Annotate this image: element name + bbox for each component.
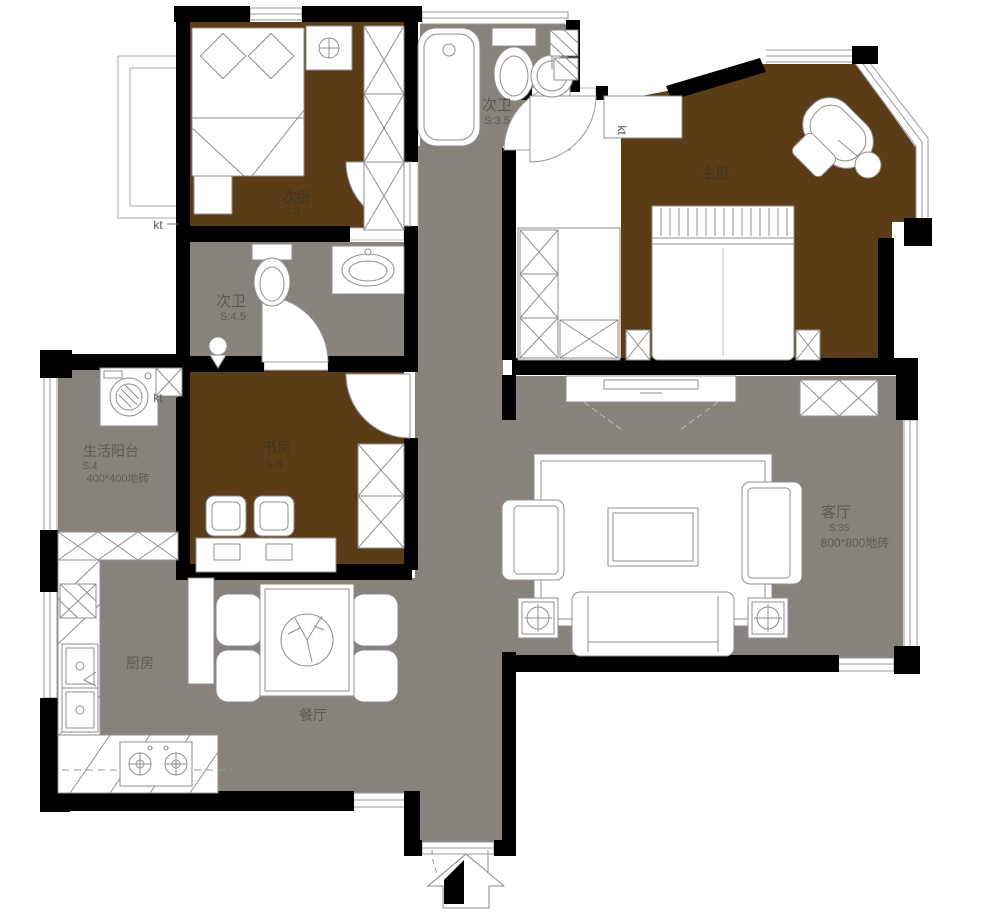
floor-plan-page: 次卧 S:8 次卫 S:3.5 主卧 次卫 S:4.5 书房 S:8 生活阳台 …: [0, 0, 1000, 913]
bathtub: [418, 28, 480, 146]
label-kitchen: 厨房: [126, 655, 154, 671]
toilet: [252, 244, 292, 306]
label-bedroom2: 次卧: [282, 189, 312, 206]
stool: [194, 176, 232, 214]
master-closet: [518, 228, 620, 360]
nightstand: [306, 26, 352, 70]
label-kt-1: kt: [153, 218, 163, 232]
label-balcony: 生活阳台: [83, 443, 139, 459]
side-table-lamp-right: [748, 598, 788, 638]
label-bath-mid: 次卫: [216, 293, 246, 310]
chair: [216, 594, 262, 646]
entrance-arrow-icon: [428, 854, 504, 908]
label-master: 主卧: [701, 165, 731, 182]
label-study: 书房: [262, 439, 292, 456]
chair: [352, 650, 398, 702]
label-kt-3: kt: [615, 125, 629, 135]
floor-plan: 次卧 S:8 次卫 S:3.5 主卧 次卫 S:4.5 书房 S:8 生活阳台 …: [0, 0, 1000, 913]
label-living-area: S:35: [829, 523, 850, 534]
chair: [216, 650, 262, 702]
coffee-table: [608, 508, 698, 566]
stove: [120, 742, 192, 786]
toilet: [492, 28, 536, 101]
cabinet-x: [800, 380, 878, 416]
label-bath-top: 次卫: [482, 97, 512, 114]
dining-set: [216, 584, 398, 702]
vanity-washbasin: [332, 246, 404, 294]
double-bed-master: [652, 206, 794, 360]
label-study-area: S:8: [266, 459, 283, 471]
kitchen-cabinet-row: [58, 532, 178, 560]
double-bed-small: [192, 28, 304, 176]
armchair-left: [502, 500, 564, 580]
armchair-right: [742, 482, 802, 584]
side-table-lamp-left: [518, 598, 558, 638]
label-dining: 餐厅: [299, 707, 327, 723]
label-bedroom2-area: S:8: [284, 206, 301, 218]
label-bath-mid-area: S:4.5: [220, 311, 246, 323]
kitchen-sink: [62, 644, 98, 732]
shaft-hatch: [550, 30, 578, 80]
chair: [352, 594, 398, 646]
side-round-table: [855, 152, 881, 178]
label-kt-2: kt: [153, 391, 163, 405]
wardrobe-bedroom2: [364, 26, 404, 230]
label-balcony-floor: 400*400地砖: [87, 471, 150, 485]
label-balcony-area: S:4: [82, 461, 97, 472]
sofa: [572, 592, 734, 656]
washing-machine: [100, 368, 158, 426]
label-bath-top-area: S:3.5: [484, 115, 510, 127]
wardrobe-study: [358, 444, 404, 548]
door-arc-master: [530, 96, 596, 162]
label-living-floor: 800*800地砖: [821, 535, 890, 550]
bay-window-left-inner: [130, 68, 180, 206]
label-living: 客厅: [821, 504, 851, 521]
bay-window-left: [118, 56, 180, 218]
sideboard: [188, 578, 214, 684]
